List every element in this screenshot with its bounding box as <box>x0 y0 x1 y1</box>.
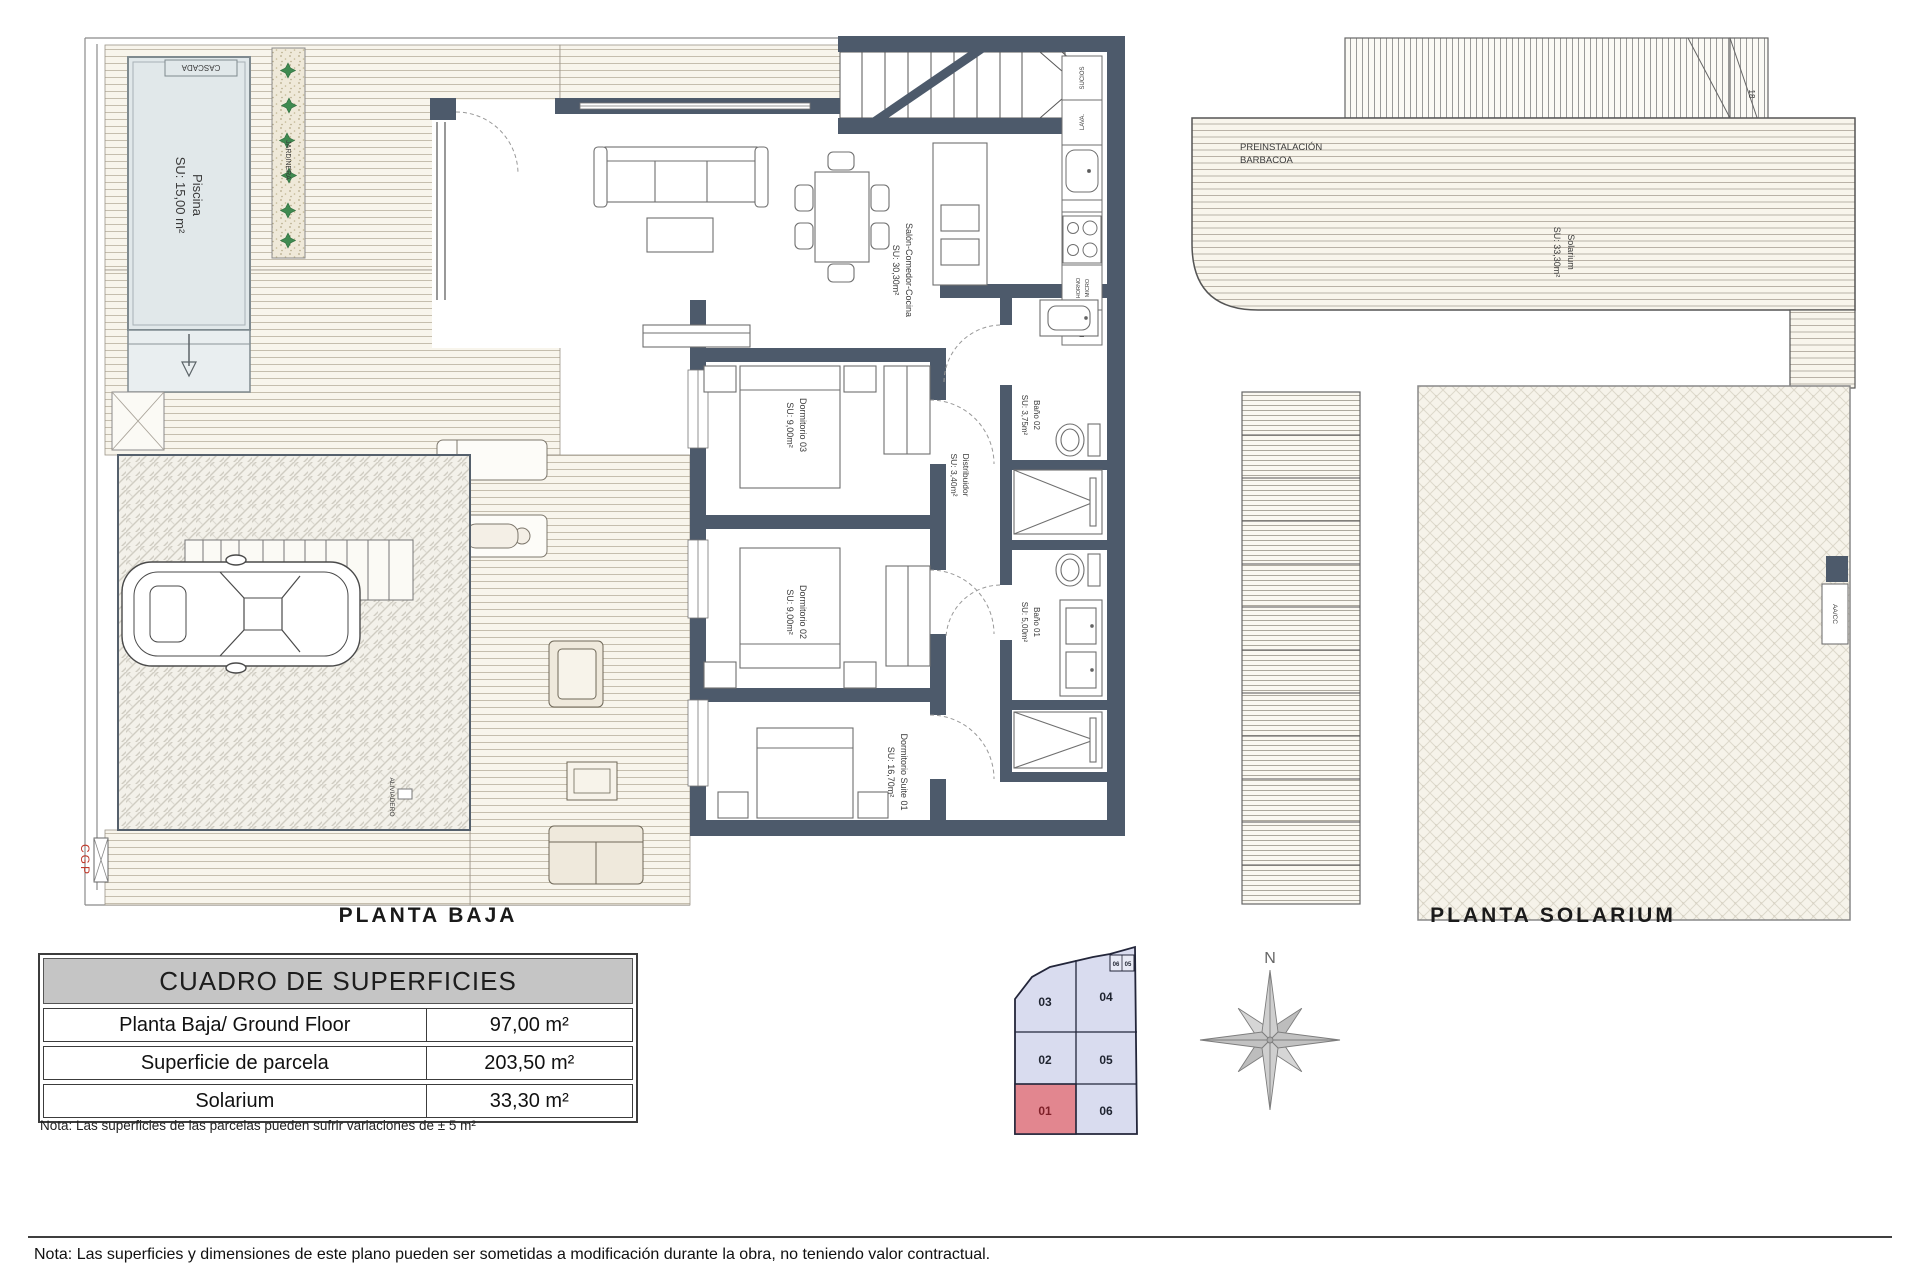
table-row: Planta Baja/ Ground Floor 97,00 m² <box>43 1008 633 1042</box>
row-value: 203,50 m² <box>427 1047 632 1079</box>
dorm02-name-label: Dormitorio 02 <box>798 585 808 639</box>
footer-divider <box>28 1236 1892 1238</box>
plan-sheet: CASCADA Piscina SU: 15,00 m² JARDINERA T… <box>0 0 1920 1280</box>
solarium-title: PLANTA SOLARIUM <box>1430 904 1676 927</box>
dorm03-area-label: SU: 9,00m² <box>785 402 795 448</box>
salon-name-label: Salón-Comedor-Cocina <box>904 223 914 317</box>
pool-name-label: Piscina <box>190 174 205 217</box>
barbacoa-label-2: BARBACOA <box>1240 155 1293 166</box>
site-plan-diagram: 06 05 03 04 02 05 01 06 <box>1015 947 1137 1134</box>
solarium-louver-strip <box>1242 392 1360 904</box>
surfaces-note: Nota: Las superficies de las parcelas pu… <box>40 1118 476 1133</box>
row-value: 33,30 m² <box>427 1085 632 1117</box>
ground-floor-title: PLANTA BAJA <box>339 904 518 927</box>
barbacoa-label-1: PREINSTALACIÓN <box>1240 142 1322 153</box>
distribuidor-name-label: Distribuidor <box>961 454 971 497</box>
site-cell-05: 05 <box>1099 1053 1113 1067</box>
row-label: Solarium <box>44 1085 427 1117</box>
solarium-stair-number: 18 <box>1747 90 1756 99</box>
aacc-label: AA/CC <box>1831 604 1838 624</box>
svg-text:LAVA.: LAVA. <box>1080 114 1086 130</box>
solarium-roof-area <box>1418 386 1850 920</box>
table-row: Superficie de parcela 203,50 m² <box>43 1046 633 1080</box>
dorm02-area-label: SU: 9,00m² <box>785 589 795 635</box>
aliviadero-label: ALIVIADERO <box>388 777 395 816</box>
cgp-label: CGP <box>78 844 92 876</box>
compass-north-label: N <box>1264 950 1276 967</box>
distribuidor-area-label: SU: 3,40m² <box>949 454 959 497</box>
site-mini-cell-06: 06 <box>1113 962 1120 968</box>
ground-floor-plan: CASCADA Piscina SU: 15,00 m² JARDINERA T… <box>78 36 1125 927</box>
suite-name-label: Dormitorio Suite 01 <box>899 733 909 810</box>
suite-area-label: SU: 16,70m² <box>886 747 896 798</box>
pool <box>112 57 250 450</box>
row-label: Superficie de parcela <box>44 1047 427 1079</box>
svg-text:MICRO: MICRO <box>1085 278 1091 297</box>
surfaces-table: CUADRO DE SUPERFICIES Planta Baja/ Groun… <box>38 953 638 1123</box>
site-cell-03: 03 <box>1038 995 1052 1009</box>
solarium-deck-extension <box>1790 310 1855 388</box>
row-value: 97,00 m² <box>427 1009 632 1041</box>
aacc-unit <box>1826 556 1848 582</box>
aliviadero-box <box>398 789 412 799</box>
surfaces-table-title: CUADRO DE SUPERFICIES <box>43 958 633 1004</box>
svg-text:SUCIOS: SUCIOS <box>1080 66 1086 89</box>
bano02-area-label: SU: 3,75m² <box>1020 395 1029 436</box>
jardinera-label: JARDINERA <box>284 140 291 180</box>
garage <box>118 455 470 830</box>
svg-text:HORNO: HORNO <box>1076 277 1082 298</box>
row-label: Planta Baja/ Ground Floor <box>44 1009 427 1041</box>
bano01-name-label: Baño 01 <box>1032 607 1041 637</box>
solarium-name-label: Solarium <box>1566 234 1576 270</box>
solarium-area-label: SU: 33,30m² <box>1552 227 1562 278</box>
bano02-name-label: Baño 02 <box>1032 400 1041 430</box>
site-cell-04: 04 <box>1099 990 1113 1004</box>
pool-area-label: SU: 15,00 m² <box>173 157 188 234</box>
site-cell-01: 01 <box>1038 1104 1052 1118</box>
footer-note: Nota: Las superficies y dimensiones de e… <box>34 1246 990 1264</box>
site-cell-02: 02 <box>1038 1053 1052 1067</box>
site-mini-cell-05: 05 <box>1125 962 1132 968</box>
pool-cascada-label: CASCADA <box>181 63 220 72</box>
table-row: Solarium 33,30 m² <box>43 1084 633 1118</box>
bano01-area-label: SU: 5,00m² <box>1020 602 1029 643</box>
salon-area-label: SU: 30,30m² <box>891 245 901 296</box>
solarium-plan: 18 PREINSTALACIÓN BARBACOA Solarium SU: … <box>1192 38 1855 927</box>
car <box>122 555 360 673</box>
dorm03-name-label: Dormitorio 03 <box>798 398 808 452</box>
compass-rose: N <box>1200 950 1340 1110</box>
site-cell-06: 06 <box>1099 1104 1113 1118</box>
